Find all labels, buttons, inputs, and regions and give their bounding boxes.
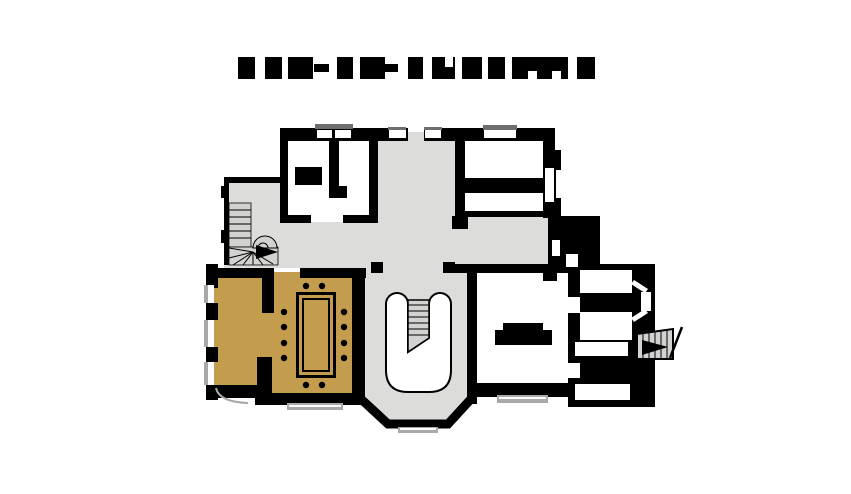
wall-segment bbox=[206, 268, 262, 278]
window bbox=[545, 168, 554, 202]
window-jamb bbox=[221, 230, 229, 243]
redacted-title-block bbox=[408, 57, 423, 79]
door-opening bbox=[565, 363, 580, 378]
fireplace bbox=[495, 323, 552, 345]
wall-pier bbox=[443, 262, 455, 273]
window-cap bbox=[483, 125, 517, 130]
chair-dot bbox=[281, 355, 287, 361]
window bbox=[400, 428, 436, 430]
room-floor bbox=[580, 312, 632, 340]
redacted-title-block bbox=[385, 64, 398, 72]
chair-dot bbox=[319, 283, 325, 289]
window bbox=[552, 240, 560, 256]
chair-dot bbox=[319, 382, 325, 388]
redacted-title-notch bbox=[445, 57, 453, 67]
door-opening bbox=[568, 297, 580, 313]
wall-pier bbox=[371, 262, 383, 273]
fireplace-mantel bbox=[503, 323, 543, 331]
redacted-title-block bbox=[360, 57, 385, 79]
fireplace-hearth bbox=[495, 330, 552, 345]
dining-table bbox=[296, 292, 336, 378]
wall-segment bbox=[455, 178, 552, 193]
window bbox=[499, 397, 546, 399]
redacted-title-block bbox=[577, 57, 595, 79]
chair-dot bbox=[281, 309, 287, 315]
window bbox=[335, 130, 351, 138]
redacted-title-block bbox=[337, 57, 353, 79]
window bbox=[389, 130, 406, 138]
wall-segment bbox=[369, 128, 378, 223]
wall-segment bbox=[224, 177, 280, 183]
corridor-right-floor bbox=[455, 215, 548, 268]
window bbox=[289, 405, 341, 407]
redacted-title-notch bbox=[528, 71, 537, 79]
chair-dot bbox=[303, 382, 309, 388]
wall-segment bbox=[262, 268, 274, 313]
floor-plan-page bbox=[0, 0, 851, 494]
wall-segment bbox=[206, 303, 218, 320]
floor-plan-drawing bbox=[0, 0, 851, 494]
redacted-title-block bbox=[288, 57, 313, 79]
redacted-title bbox=[238, 57, 595, 79]
redacted-title-block bbox=[488, 57, 505, 79]
hall-column-floor bbox=[371, 132, 457, 268]
room-floor bbox=[575, 342, 628, 356]
window-sill bbox=[204, 285, 208, 303]
wall-segment bbox=[206, 347, 218, 362]
wall-pier bbox=[543, 264, 557, 281]
wall-segment bbox=[280, 128, 288, 223]
wall-pier bbox=[452, 216, 468, 229]
dining-windows bbox=[204, 285, 214, 385]
redacted-title-block bbox=[265, 57, 282, 79]
wall-segment bbox=[352, 268, 365, 405]
wall-segment bbox=[280, 215, 311, 223]
window bbox=[641, 292, 651, 311]
chair-dot bbox=[281, 340, 287, 346]
wall-segment bbox=[467, 383, 570, 397]
window-jamb bbox=[221, 186, 229, 198]
wall-segment bbox=[329, 140, 339, 192]
wall-segment bbox=[455, 128, 465, 216]
room-floor bbox=[580, 270, 632, 293]
chair-dot bbox=[341, 340, 347, 346]
window bbox=[317, 130, 332, 138]
room-floor bbox=[575, 384, 630, 400]
chair-dot bbox=[281, 324, 287, 330]
wall-segment bbox=[465, 211, 543, 217]
table-top bbox=[299, 295, 333, 375]
window bbox=[208, 320, 214, 347]
grand-staircase bbox=[386, 293, 451, 392]
window-jamb bbox=[543, 168, 545, 202]
window bbox=[208, 362, 214, 385]
window-cap bbox=[424, 127, 442, 130]
window-sill bbox=[204, 320, 208, 347]
floor-plan bbox=[204, 124, 682, 433]
chair-dot bbox=[341, 355, 347, 361]
wall-segment bbox=[552, 150, 561, 170]
window-jamb bbox=[554, 168, 556, 202]
window bbox=[425, 130, 441, 138]
corridor-left-floor bbox=[280, 222, 375, 268]
window-cap bbox=[388, 127, 406, 130]
wall-segment bbox=[343, 215, 376, 223]
wall-segment bbox=[206, 385, 258, 398]
wall-segment bbox=[329, 186, 347, 198]
closet-fixture bbox=[295, 167, 322, 185]
window bbox=[484, 130, 516, 138]
window-sill bbox=[204, 362, 208, 385]
window bbox=[208, 285, 214, 303]
redacted-title-block bbox=[238, 57, 255, 79]
window-cap bbox=[315, 124, 353, 129]
redacted-title-block bbox=[462, 57, 482, 79]
redacted-title-block bbox=[314, 64, 329, 72]
chair-dot bbox=[303, 283, 309, 289]
chair-dot bbox=[341, 324, 347, 330]
chair-dot bbox=[341, 309, 347, 315]
redacted-title-notch bbox=[552, 71, 561, 79]
door-opening bbox=[566, 254, 578, 267]
